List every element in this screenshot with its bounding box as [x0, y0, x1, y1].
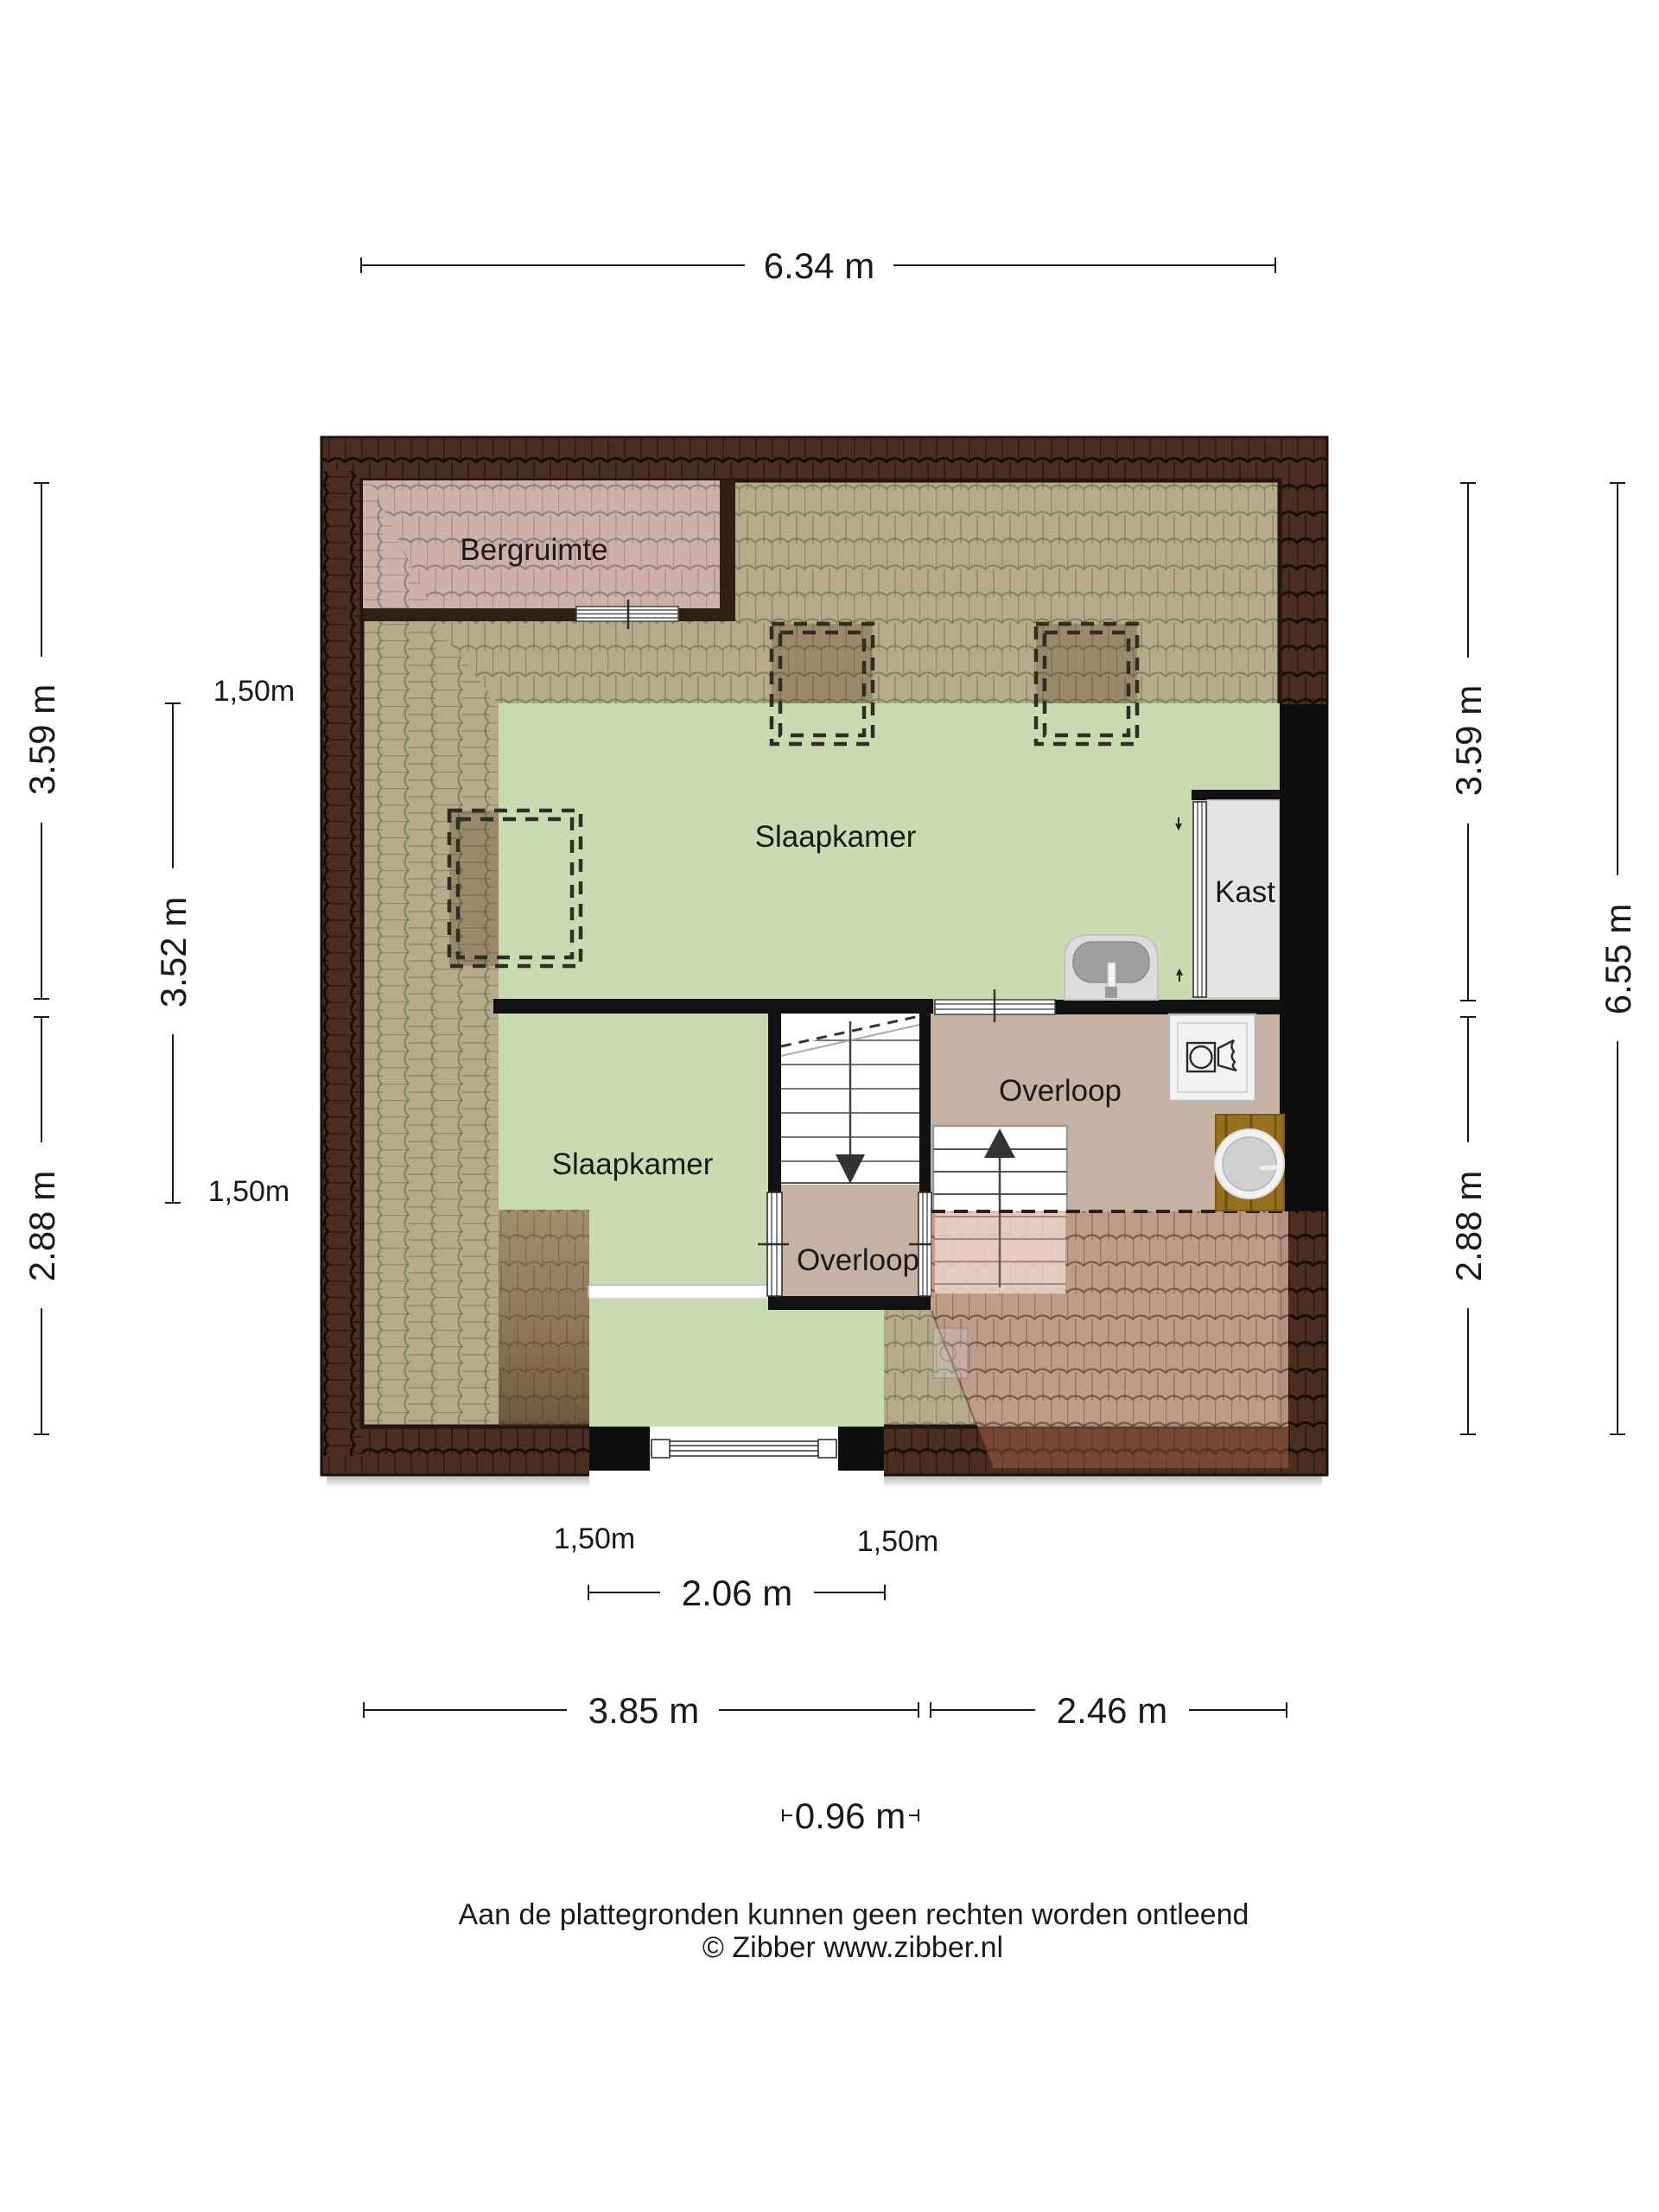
svg-text:3.59 m: 3.59 m: [1448, 685, 1489, 796]
svg-text:Overloop: Overloop: [999, 1074, 1122, 1108]
svg-text:0.96 m: 0.96 m: [795, 1796, 906, 1836]
svg-text:3.85 m: 3.85 m: [588, 1690, 699, 1731]
svg-text:2.06 m: 2.06 m: [682, 1573, 792, 1613]
svg-text:3.59 m: 3.59 m: [22, 684, 62, 795]
svg-text:1,50m: 1,50m: [208, 1175, 290, 1208]
svg-text:1,50m: 1,50m: [857, 1525, 939, 1558]
svg-text:Slaapkamer: Slaapkamer: [552, 1147, 714, 1181]
svg-text:Kast: Kast: [1215, 875, 1275, 909]
svg-text:2.88 m: 2.88 m: [22, 1171, 62, 1281]
svg-text:6.55 m: 6.55 m: [1598, 904, 1638, 1014]
svg-text:2.88 m: 2.88 m: [1448, 1171, 1489, 1281]
svg-text:3.52 m: 3.52 m: [153, 897, 194, 1007]
svg-text:Slaapkamer: Slaapkamer: [755, 820, 917, 854]
svg-text:1,50m: 1,50m: [213, 675, 296, 708]
svg-text:1,50m: 1,50m: [554, 1522, 636, 1555]
svg-text:6.34 m: 6.34 m: [764, 245, 874, 286]
svg-text:Aan de plattegronden kunnen ge: Aan de plattegronden kunnen geen rechten…: [459, 1898, 1249, 1931]
svg-text:Overloop: Overloop: [797, 1243, 919, 1277]
svg-text:2.46 m: 2.46 m: [1057, 1690, 1167, 1731]
svg-text:Bergruimte: Bergruimte: [460, 533, 607, 567]
svg-text:© Zibber www.zibber.nl: © Zibber www.zibber.nl: [702, 1931, 1003, 1964]
